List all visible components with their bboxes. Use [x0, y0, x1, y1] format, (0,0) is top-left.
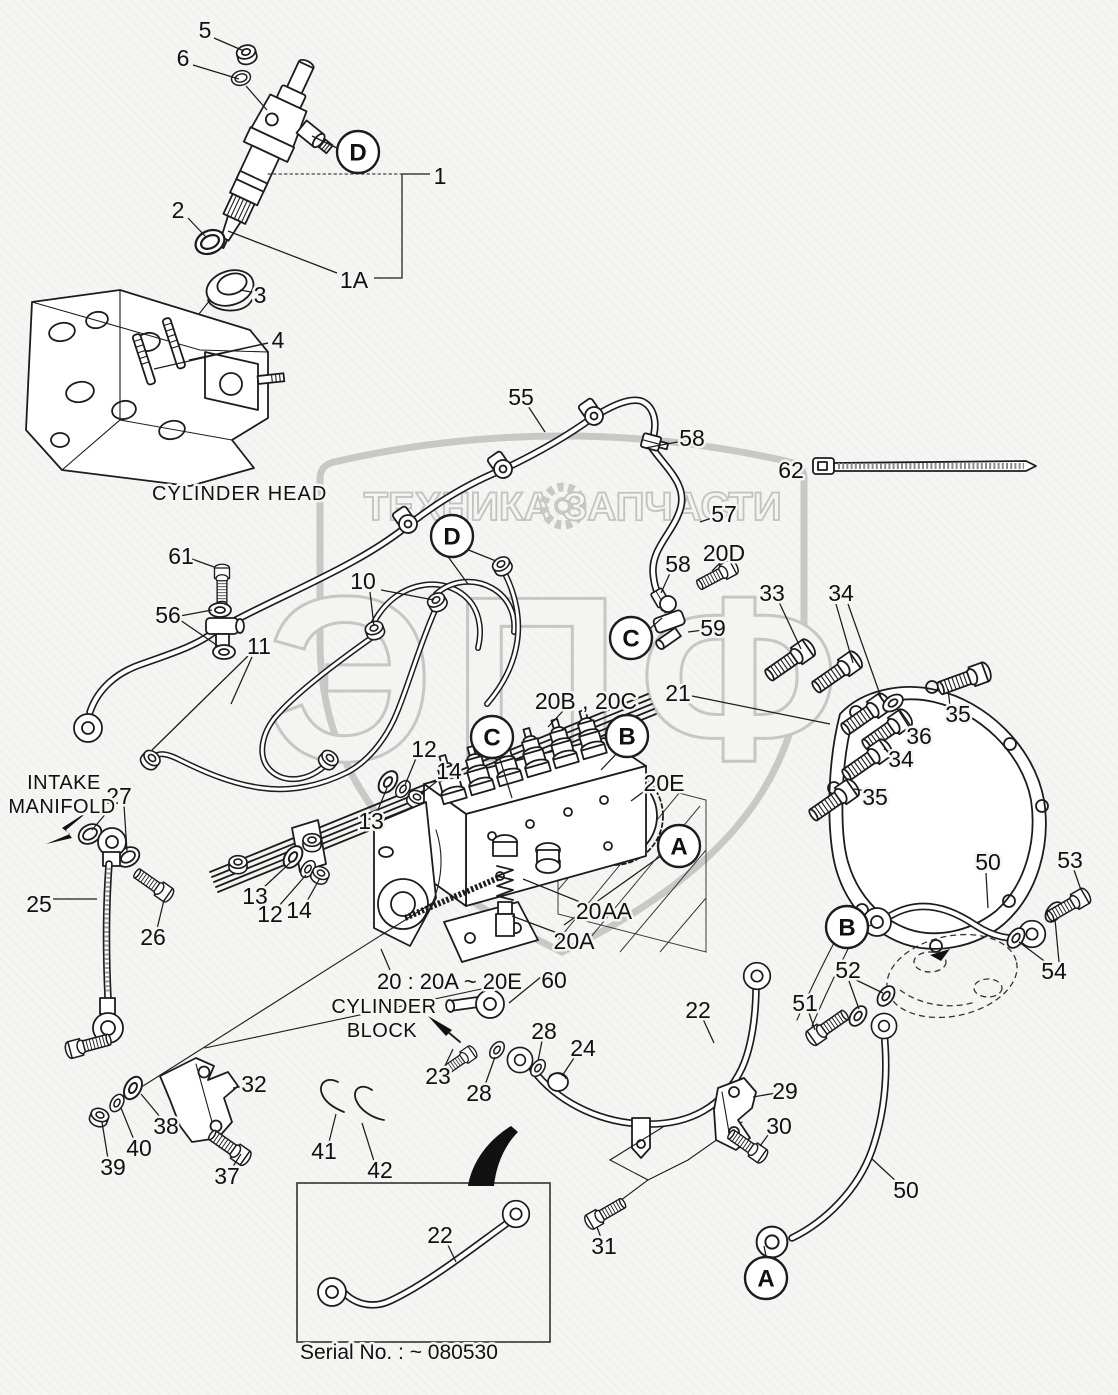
callout-60: 60 [541, 967, 567, 993]
callout-6: 6 [177, 45, 190, 71]
leader-line-52 [849, 981, 859, 1009]
leader-line-5 [214, 38, 244, 51]
callout-58: 58 [679, 425, 705, 451]
callout-14: 14 [436, 758, 462, 784]
ref-letter-B: B [838, 915, 855, 942]
callout-55: 55 [508, 384, 534, 410]
callout-56: 56 [155, 602, 181, 628]
injector-cup [202, 264, 258, 311]
callout-39: 39 [100, 1154, 126, 1180]
callout-57: 57 [711, 501, 737, 527]
serial-note: Serial No. : ~ 080530 [300, 1341, 498, 1364]
intake-manifold-line1: INTAKE [27, 772, 101, 794]
callout-22: 22 [685, 997, 711, 1023]
cylinder-head-label: CYLINDER HEAD [152, 483, 327, 505]
callout-4: 4 [272, 327, 285, 353]
callout-1: 1 [434, 163, 447, 189]
callout-20AA: 20AA [576, 898, 633, 924]
swoosh-arrow [468, 1126, 518, 1186]
callout-58: 58 [665, 551, 691, 577]
leader-line-11 [152, 655, 249, 750]
callout-1A: 1A [340, 267, 369, 293]
cable-tie-62 [813, 458, 1036, 474]
callout-54: 54 [1041, 958, 1067, 984]
callout-40: 40 [126, 1135, 152, 1161]
callout-21: 21 [665, 680, 691, 706]
callout-31: 31 [591, 1233, 617, 1259]
cylinder-block-line2: BLOCK [347, 1020, 417, 1042]
ref-letter-A: A [670, 834, 687, 861]
fitting-hex [536, 843, 560, 873]
callout-34: 34 [888, 746, 914, 772]
leader-line-61 [192, 559, 214, 567]
leader-line-11 [231, 657, 252, 704]
leader-line-1A [228, 231, 337, 273]
callout-20B , 20C: 20B , 20C [535, 688, 637, 714]
callout-20A: 20A [554, 928, 596, 954]
bracket-29-group [714, 1078, 770, 1165]
ref-letter-A: A [757, 1266, 774, 1293]
inset-box [297, 1183, 550, 1342]
leader-line-54 [1055, 919, 1059, 962]
callout-35: 35 [862, 784, 888, 810]
cylinder-block-line1: CYLINDER [331, 996, 436, 1018]
callout-41: 41 [311, 1138, 337, 1164]
callout-12: 12 [411, 736, 437, 762]
cylinder-head-drawing [26, 290, 284, 486]
callout-10: 10 [350, 568, 376, 594]
callout-35: 35 [945, 701, 971, 727]
callout-3: 3 [254, 282, 267, 308]
callout-53: 53 [1057, 847, 1083, 873]
ref-letter-C: C [483, 725, 500, 752]
callout-51: 51 [792, 990, 818, 1016]
callout-29: 29 [772, 1078, 798, 1104]
ref-letter-D: D [349, 140, 366, 167]
leader-line-6 [246, 86, 267, 110]
callout-2: 2 [172, 197, 185, 223]
callout-50: 50 [893, 1177, 919, 1203]
callout-33: 33 [759, 580, 785, 606]
parts-diagram-page: ТЕХНИКА ЗАПЧАСТИ ЭПФ [0, 0, 1118, 1395]
callout-24: 24 [570, 1035, 596, 1061]
leader-line-6 [193, 65, 239, 79]
ref-letter-D: D [443, 524, 460, 551]
parts-diagram: ТЕХНИКА ЗАПЧАСТИ ЭПФ [0, 0, 1118, 1395]
callout-20D: 20D [703, 540, 745, 566]
leader-line-42 [362, 1123, 374, 1161]
callout-62: 62 [778, 457, 804, 483]
callout-42: 42 [367, 1157, 393, 1183]
callout-26: 26 [140, 924, 166, 950]
callout-37: 37 [214, 1163, 240, 1189]
ref-letter-C: C [622, 626, 639, 653]
callout-14: 14 [286, 897, 312, 923]
callout-28: 28 [466, 1080, 492, 1106]
callout-28: 28 [531, 1018, 557, 1044]
pump-group-note: 20 : 20A ~ 20E [377, 969, 522, 994]
leader-line-56 [180, 610, 212, 616]
leader-line-28 [538, 1041, 542, 1061]
banjo-60 [445, 990, 504, 1018]
callout-59: 59 [700, 615, 726, 641]
callout-50: 50 [975, 849, 1001, 875]
callout-5: 5 [199, 17, 212, 43]
callout-13: 13 [358, 808, 384, 834]
leader-line-53 [1074, 870, 1081, 890]
callout-30: 30 [766, 1113, 792, 1139]
hook-clips [321, 1080, 384, 1120]
callout-23: 23 [425, 1063, 451, 1089]
callout-52: 52 [835, 957, 861, 983]
callout-12: 12 [257, 901, 283, 927]
callout-25: 25 [26, 891, 52, 917]
ref-letter-B: B [618, 724, 635, 751]
callout-11: 11 [247, 633, 271, 659]
callout-61: 61 [168, 543, 194, 569]
plug-24 [548, 1073, 568, 1091]
callout-32: 32 [241, 1071, 267, 1097]
callout-38: 38 [153, 1113, 179, 1139]
callout-34: 34 [828, 580, 854, 606]
leader-line-2 [188, 218, 206, 237]
callout-22: 22 [427, 1222, 453, 1248]
callout-20E: 20E [644, 770, 685, 796]
intake-manifold-line2: MANIFOLD [8, 796, 115, 818]
